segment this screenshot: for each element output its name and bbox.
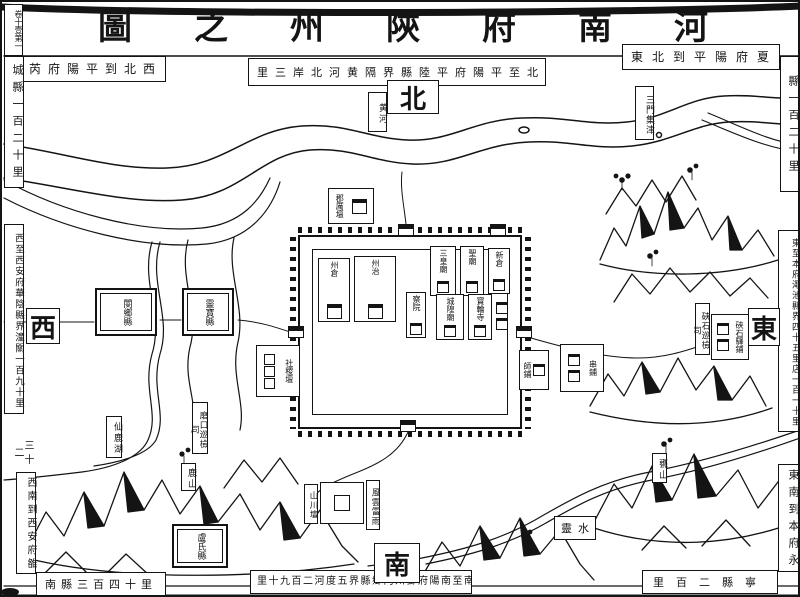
shi-post-box: 師鋪 xyxy=(519,350,549,390)
compound-granary: 州倉 xyxy=(318,258,350,322)
town-wenxiang: 閿鄉縣 xyxy=(95,288,157,336)
volume-page-marker: 卷十壹第一 xyxy=(4,4,23,56)
new-granary-label: 新倉 xyxy=(495,251,503,267)
altar-square xyxy=(334,495,350,511)
chuan-post-buildings xyxy=(568,354,580,382)
northeast-corner-tower xyxy=(490,224,506,236)
yamen-label: 州治 xyxy=(371,259,379,275)
chenghuang-temple-label: 城隍廟 xyxy=(446,297,454,321)
sheji-altar-squares xyxy=(263,353,276,390)
town-lushi-label: 盧氏縣 xyxy=(195,532,206,561)
town-lingbao: 靈寶縣 xyxy=(182,288,234,336)
jun-li-altar-building-icon xyxy=(352,199,367,214)
small-buildings-cluster xyxy=(496,302,508,330)
town-wenxiang-label: 閿鄉縣 xyxy=(121,298,132,327)
sanhuang-temple-label: 三皇廟 xyxy=(439,249,447,273)
chuan-post-label: 串鋪 xyxy=(589,360,597,376)
mokou-patrol-label: 磨口巡檢司 xyxy=(192,402,208,454)
censorate-building-icon xyxy=(410,323,422,335)
chuan-post-box: 串鋪 xyxy=(560,344,604,392)
xiashi-patrol-label: 硤石巡檢司 xyxy=(695,303,710,355)
xianlu-lake-label: 仙鹿湖 xyxy=(106,416,122,458)
strip-southwest-distance: 西南到西安府雒 xyxy=(16,472,36,574)
map-title: 圖之州陝府南河 xyxy=(98,10,770,47)
strip-northwest-distance-cont: 城縣一百二十里 xyxy=(4,56,24,188)
altar-square xyxy=(264,366,275,377)
west-gate-tower xyxy=(288,326,304,338)
shi-post-label: 師鋪 xyxy=(523,362,531,378)
compass-north: 北 xyxy=(387,80,439,114)
sanmen-ford-label: 三門集津 xyxy=(635,86,654,140)
granary-label: 州倉 xyxy=(330,261,338,277)
baolun-building-icon xyxy=(474,325,486,337)
strip-northeast-distance-cont: 縣一百二十里 xyxy=(780,56,800,192)
small-building-icon xyxy=(496,318,508,330)
fengyun-leiyu-label: 風雲雷雨 xyxy=(366,480,380,530)
strip-southeast-distance: 東南到本府永 xyxy=(778,464,800,572)
compound-sage-temple: 聖廟 xyxy=(460,246,484,296)
sheji-altar-box: 社稷壇 xyxy=(256,345,300,397)
compass-west: 西 xyxy=(26,308,60,344)
baolun-temple-label: 寶輪寺 xyxy=(476,297,484,321)
compound-baolun-temple: 寶輪寺 xyxy=(468,294,492,340)
chenghuang-building-icon xyxy=(444,325,456,337)
shanzhou-map: 卷十壹第一 圖之州陝府南河 芮府陽平到北西 城縣一百二十里 里三岸北河黄隔界縣陸… xyxy=(0,0,800,597)
yellow-river-label: 黄河 xyxy=(368,92,387,132)
small-building-icon xyxy=(496,302,508,314)
strip-south-distance: 里十九百二河度五界縣鄉内州鄧府陽南至南 xyxy=(250,570,472,594)
compound-new-granary: 新倉 xyxy=(488,248,510,294)
north-gate-tower xyxy=(398,224,414,236)
new-granary-building-icon xyxy=(493,279,505,291)
strip-southeast-distance-cont: 里百二縣寧 xyxy=(642,570,778,594)
ling-shui-label: 靈水 xyxy=(554,516,596,540)
south-gate-tower xyxy=(400,420,416,432)
weng-shan-label: 甕山 xyxy=(652,453,667,483)
strip-east-distance: 東至本府澠池縣界四十五里店一百一十里 xyxy=(778,230,800,432)
strip-northwest-distance: 芮府陽平到北西 xyxy=(20,56,166,82)
lu-shan-label: 鹿山 xyxy=(181,463,196,491)
strip-west-distance: 西至西安府華陰縣界潼關一百九十里 xyxy=(4,224,24,414)
compass-east: 東 xyxy=(748,308,780,346)
yamen-building-icon xyxy=(368,304,383,319)
strip-west-small-note: 三十二 xyxy=(14,430,32,474)
strip-northeast-distance: 東北到平陽府夏 xyxy=(622,44,780,70)
town-lushi: 盧氏縣 xyxy=(172,524,228,568)
shanchuan-altar-box xyxy=(320,482,364,524)
altar-square xyxy=(264,354,275,365)
censorate-label: 察院 xyxy=(412,295,420,311)
jun-li-altar-label: 郡厲壇 xyxy=(335,194,343,218)
strip-southwest-distance-cont: 南縣三百四十里 xyxy=(36,572,166,596)
xiashi-station-box: 硤石驛鋪 xyxy=(711,314,749,360)
compound-censorate: 察院 xyxy=(406,292,426,338)
sheji-altar-label: 社稷壇 xyxy=(285,359,293,383)
altar-square xyxy=(264,378,275,389)
mountains-northeast xyxy=(600,176,778,302)
granary-building-icon xyxy=(327,304,342,319)
xiashi-station-building-icon xyxy=(717,339,729,351)
east-gate-tower xyxy=(516,326,532,338)
sage-temple-label: 聖廟 xyxy=(468,249,476,265)
shanchuan-altar-label: 山川壇 xyxy=(304,484,318,524)
chuan-post-building-icon xyxy=(568,354,580,366)
sanhuang-building-icon xyxy=(437,281,449,293)
xiashi-station-buildings xyxy=(717,323,729,351)
mountains-southeast xyxy=(594,454,796,550)
jun-li-altar-box: 郡厲壇 xyxy=(328,188,374,224)
compound-yamen: 州治 xyxy=(354,256,396,322)
compass-south: 南 xyxy=(374,543,420,583)
shi-post-building-icon xyxy=(533,364,545,376)
town-lingbao-label: 靈寶縣 xyxy=(203,298,214,327)
xiashi-station-building-icon xyxy=(717,323,729,335)
sage-temple-building-icon xyxy=(466,281,478,293)
ling-shui-path xyxy=(368,430,800,566)
compound-chenghuang-temple: 城隍廟 xyxy=(436,294,464,340)
compound-sanhuang-temple: 三皇廟 xyxy=(430,246,456,296)
chuan-post-building-icon xyxy=(568,370,580,382)
mountains-east xyxy=(590,358,772,424)
xiashi-station-label: 硤石驛鋪 xyxy=(735,321,743,353)
